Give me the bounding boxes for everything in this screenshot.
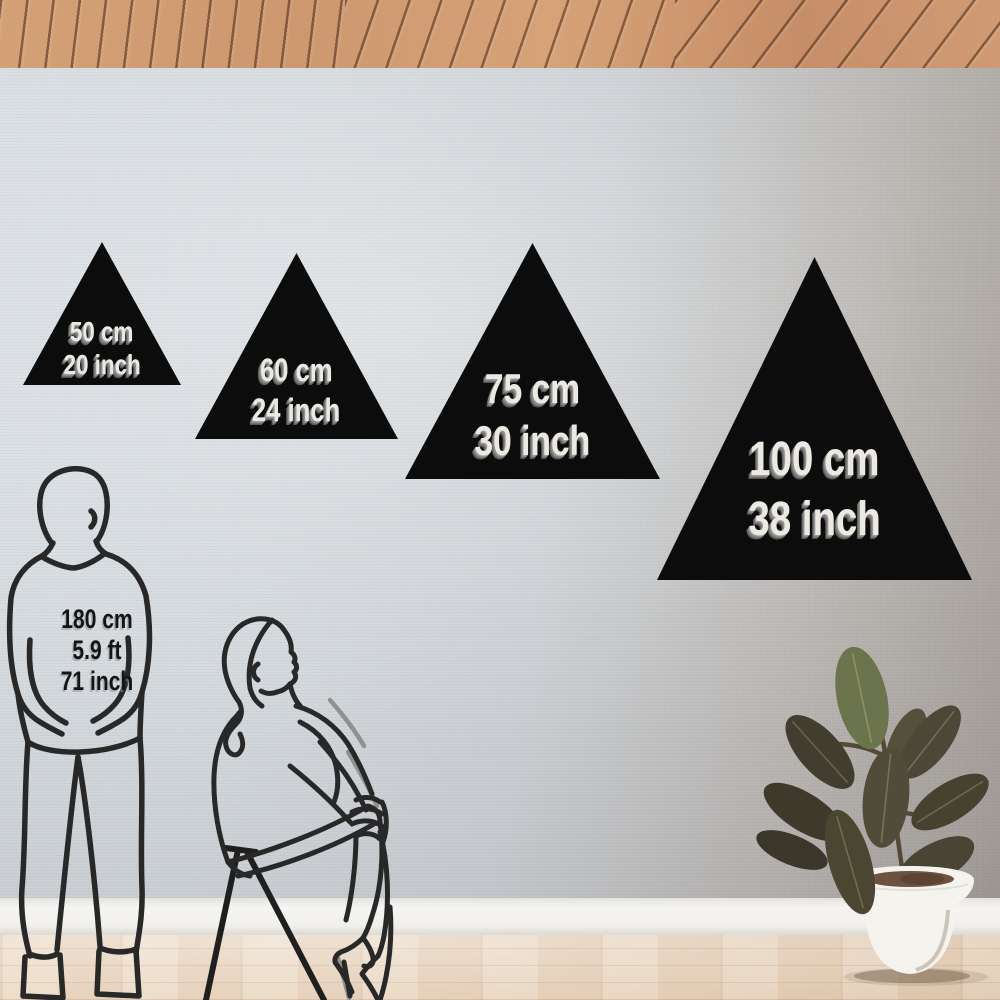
room-scene: 50 cm 20 inch 60 cm 24 inch 75 cm 30 inc… <box>0 0 1000 1000</box>
man-figure <box>10 469 150 998</box>
height-cm: 180 cm <box>49 604 144 635</box>
height-inch: 71 inch <box>49 666 144 697</box>
potted-plant <box>751 642 997 986</box>
figures-overlay <box>0 0 1000 1000</box>
person-height-label: 180 cm 5.9 ft 71 inch <box>36 604 158 697</box>
plant-leaves <box>751 642 997 899</box>
woman-figure <box>214 619 391 1000</box>
height-ft: 5.9 ft <box>49 635 144 666</box>
